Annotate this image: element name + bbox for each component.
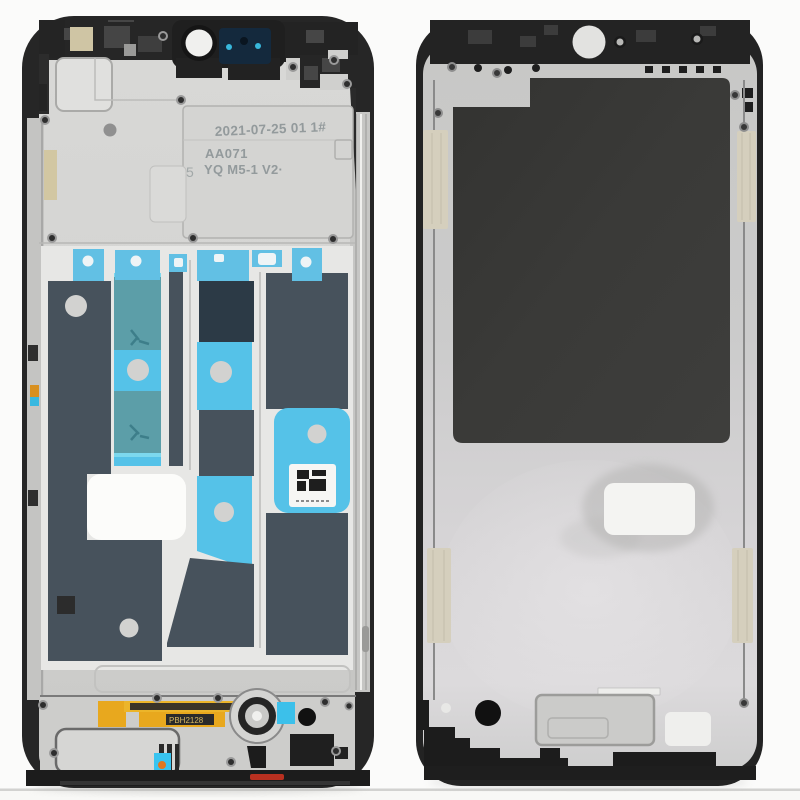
svg-text:AA071: AA071 — [205, 146, 248, 161]
svg-text:PBH2128: PBH2128 — [169, 716, 204, 725]
svg-text:5: 5 — [186, 164, 194, 180]
svg-text:YQ M5-1 V2·: YQ M5-1 V2· — [204, 162, 283, 177]
